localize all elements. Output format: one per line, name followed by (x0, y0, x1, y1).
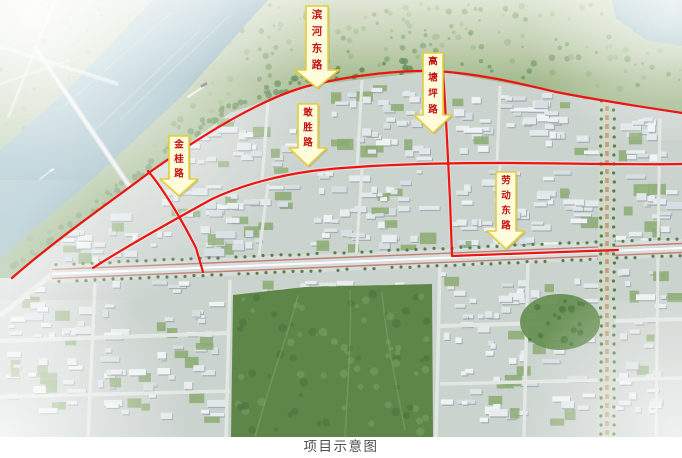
road-label-char: 东 (312, 41, 323, 54)
road-label-char: 河 (312, 26, 323, 38)
haze-overlay (0, 0, 682, 437)
image-caption: 项目示意图 (0, 437, 682, 458)
road-label-char: 塘 (428, 72, 438, 84)
road-label-char: 高 (428, 56, 438, 68)
road-label-char: 胜 (302, 122, 313, 134)
road-label-char: 路 (174, 168, 184, 180)
road-label-char: 金 (173, 139, 184, 151)
road-label-char: 桂 (173, 153, 184, 165)
road-label-char: 动 (501, 191, 511, 202)
road-label-char: 坪 (428, 88, 438, 100)
road-label-char: 东 (501, 205, 511, 217)
road-label-char: 路 (312, 58, 323, 71)
project-aerial-rendering: 滨河东路高塘坪路敢胜路金桂路劳动东路 (0, 0, 682, 437)
road-label-char: 路 (501, 220, 511, 232)
road-label-char: 劳 (501, 175, 511, 187)
road-label-char: 路 (428, 104, 438, 116)
road-label-char: 滨 (312, 8, 323, 21)
road-label-char: 路 (303, 137, 313, 149)
aerial-scene-svg: 滨河东路高塘坪路敢胜路金桂路劳动东路 (0, 0, 682, 437)
road-label-char: 敢 (303, 107, 313, 119)
page: 滨河东路高塘坪路敢胜路金桂路劳动东路 项目示意图 (0, 0, 682, 458)
